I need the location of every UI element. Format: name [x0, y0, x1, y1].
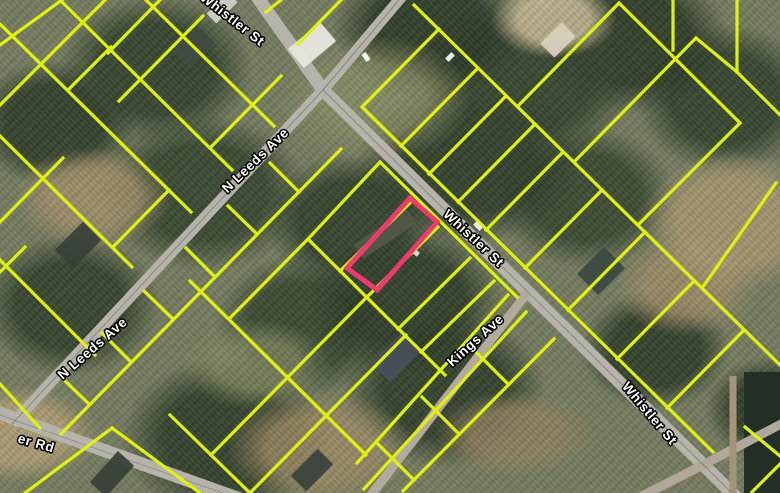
parcel-line: [0, 0, 62, 45]
map-overlay: Whistler StWhistler StWhistler StN Leeds…: [0, 0, 780, 493]
parcel-line: [518, 3, 619, 106]
parcel-line: [211, 377, 288, 455]
parcel-line: [638, 123, 740, 225]
parcel-line: [270, 163, 299, 192]
parcel-line: [525, 190, 602, 268]
parcel-line: [414, 5, 780, 365]
vehicle: [445, 52, 455, 62]
parcel-line: [0, 260, 95, 355]
parcel-line: [737, 72, 780, 115]
parcel-line: [0, 0, 105, 105]
parcel-line: [186, 248, 215, 277]
parcel-line: [574, 38, 696, 162]
parcel-line: [308, 239, 445, 375]
parcel-line: [190, 281, 366, 455]
map-viewport[interactable]: Whistler StWhistler StWhistler StN Leeds…: [0, 0, 780, 493]
building-roof: [291, 449, 333, 491]
parcel-line: [113, 190, 169, 247]
parcel-line: [364, 312, 526, 489]
parcel-line: [702, 183, 776, 288]
parcel-line: [0, 24, 191, 212]
parcel-line: [144, 291, 173, 319]
parcel-line: [696, 38, 737, 72]
parcel-line: [362, 29, 439, 107]
parcel-line: [617, 281, 694, 359]
parcel-line: [288, 297, 367, 377]
building-roof: [371, 332, 421, 382]
parcel-line: [60, 0, 232, 170]
parcel-line: [398, 258, 470, 329]
parcel-line: [69, 47, 111, 89]
parcel-line: [108, 0, 160, 53]
parcel-line: [146, 0, 274, 126]
building-roof: [577, 247, 625, 295]
parcel-line: [568, 232, 645, 310]
street-label: N Leeds Ave: [219, 125, 292, 196]
parcel-line: [228, 206, 257, 234]
parcel-line: [619, 3, 740, 123]
parcel-line: [0, 247, 25, 272]
vehicle: [361, 52, 370, 62]
